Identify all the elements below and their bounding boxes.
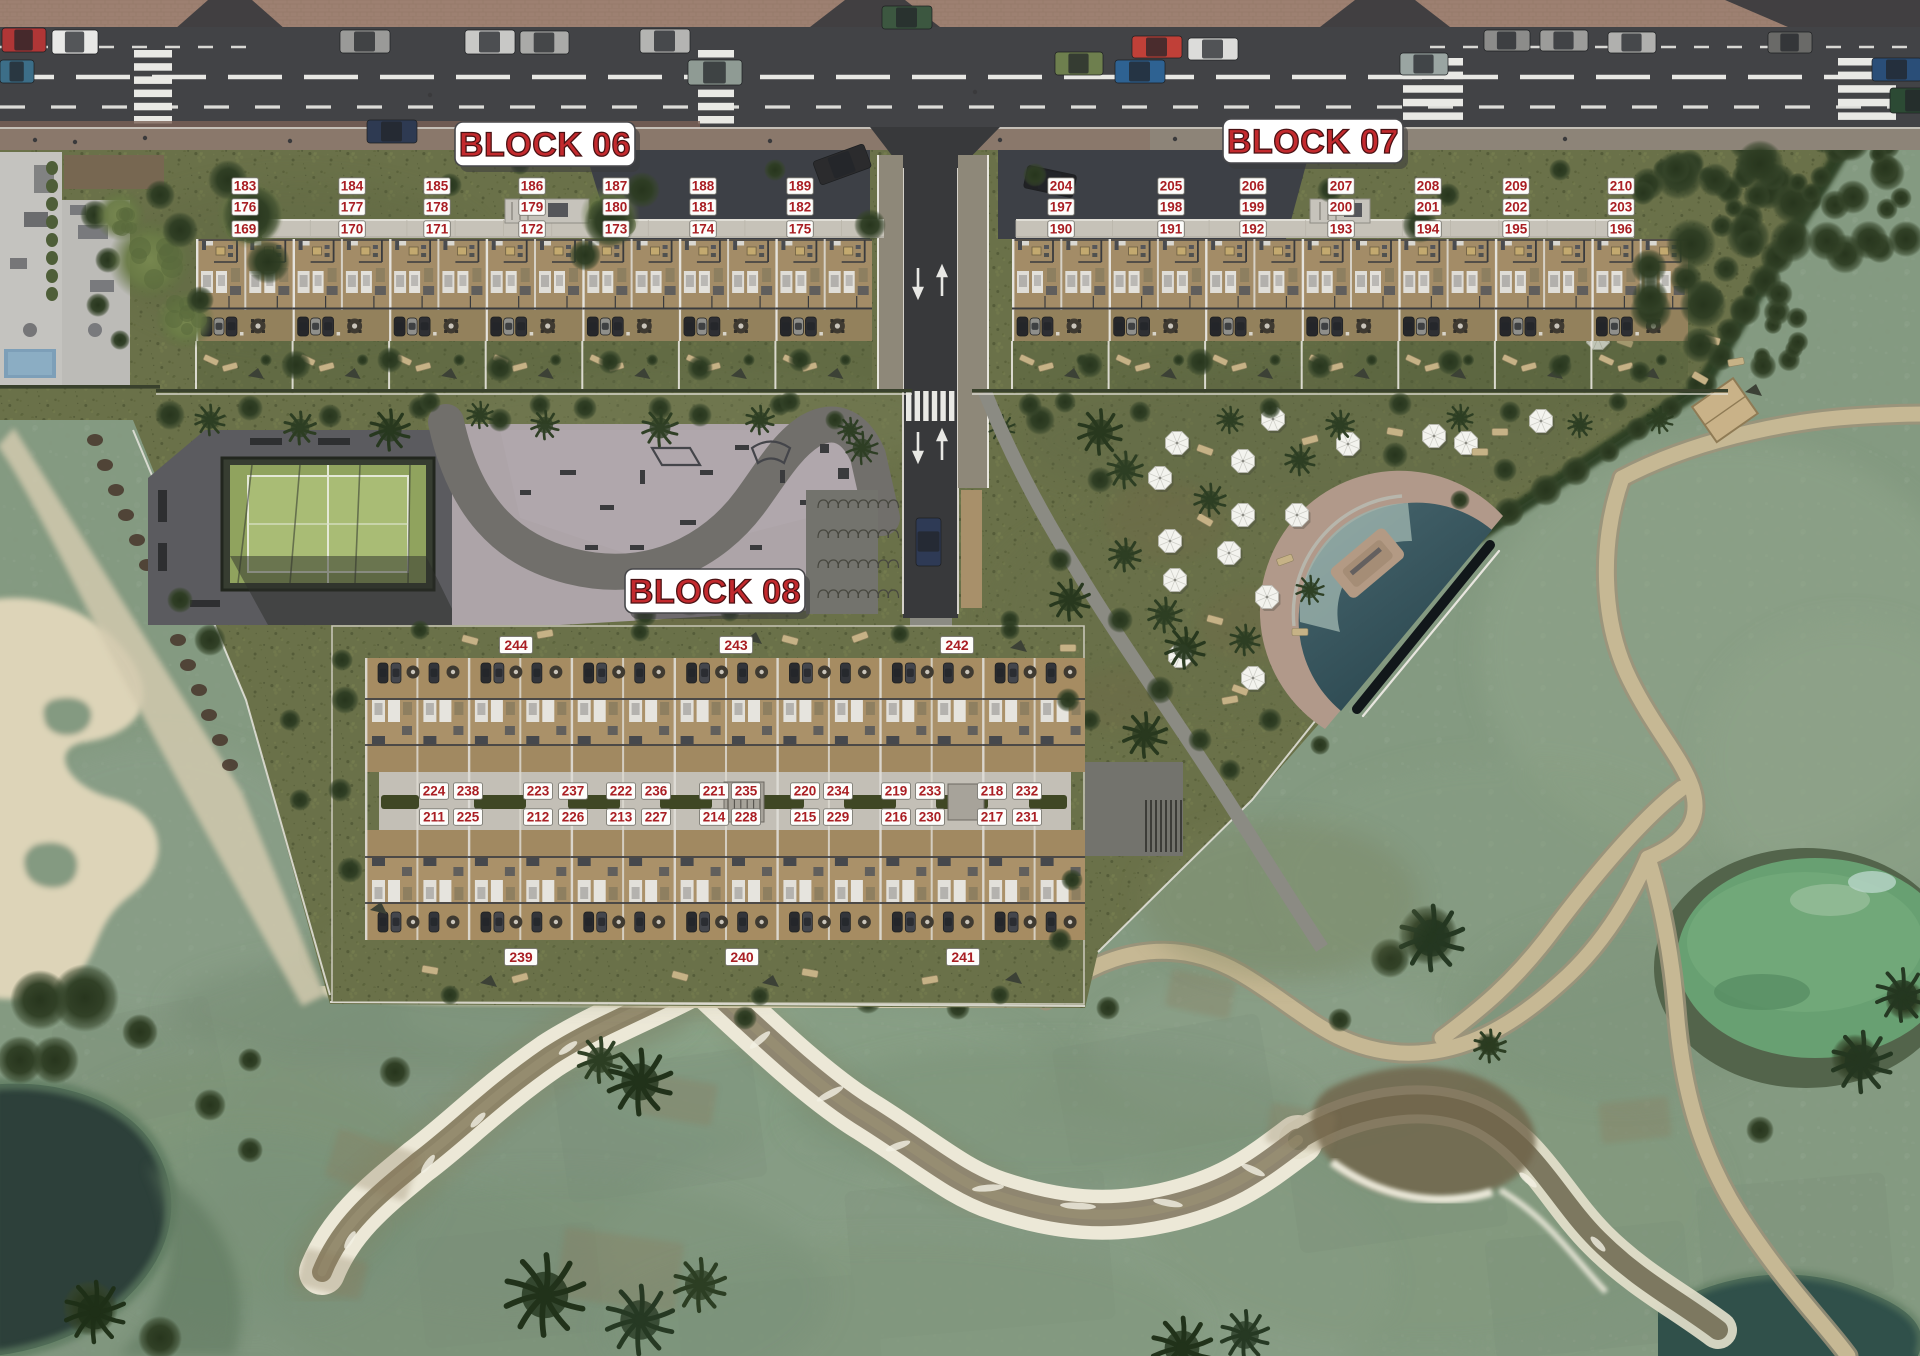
svg-text:236: 236 <box>645 784 668 799</box>
svg-text:232: 232 <box>1016 784 1039 799</box>
svg-text:187: 187 <box>605 179 628 194</box>
svg-text:176: 176 <box>234 200 257 215</box>
svg-text:243: 243 <box>724 637 748 653</box>
svg-text:233: 233 <box>919 784 942 799</box>
svg-text:188: 188 <box>692 179 715 194</box>
svg-text:179: 179 <box>521 200 544 215</box>
svg-text:202: 202 <box>1505 200 1528 215</box>
svg-text:241: 241 <box>951 949 975 965</box>
svg-text:174: 174 <box>692 222 715 237</box>
svg-text:220: 220 <box>794 784 817 799</box>
svg-text:227: 227 <box>645 810 668 825</box>
svg-text:182: 182 <box>789 200 812 215</box>
svg-text:170: 170 <box>341 222 364 237</box>
svg-text:205: 205 <box>1160 179 1183 194</box>
svg-text:203: 203 <box>1610 200 1633 215</box>
svg-text:185: 185 <box>426 179 449 194</box>
svg-text:221: 221 <box>703 784 726 799</box>
svg-text:200: 200 <box>1330 200 1353 215</box>
svg-text:212: 212 <box>527 810 550 825</box>
svg-text:242: 242 <box>945 637 969 653</box>
svg-text:229: 229 <box>827 810 850 825</box>
svg-text:215: 215 <box>794 810 817 825</box>
svg-text:199: 199 <box>1242 200 1265 215</box>
svg-text:228: 228 <box>735 810 758 825</box>
svg-text:217: 217 <box>981 810 1004 825</box>
svg-text:219: 219 <box>885 784 908 799</box>
svg-text:194: 194 <box>1417 222 1440 237</box>
svg-text:193: 193 <box>1330 222 1353 237</box>
svg-text:225: 225 <box>457 810 480 825</box>
svg-text:226: 226 <box>562 810 585 825</box>
svg-text:218: 218 <box>981 784 1004 799</box>
svg-text:237: 237 <box>562 784 585 799</box>
svg-text:208: 208 <box>1417 179 1440 194</box>
svg-text:240: 240 <box>730 949 754 965</box>
svg-text:BLOCK 08: BLOCK 08 <box>629 573 801 611</box>
svg-text:BLOCK 06: BLOCK 06 <box>459 126 631 164</box>
svg-text:222: 222 <box>610 784 633 799</box>
svg-text:238: 238 <box>457 784 480 799</box>
svg-text:184: 184 <box>341 179 364 194</box>
svg-text:198: 198 <box>1160 200 1183 215</box>
svg-text:192: 192 <box>1242 222 1265 237</box>
svg-text:235: 235 <box>735 784 758 799</box>
svg-text:216: 216 <box>885 810 908 825</box>
svg-text:234: 234 <box>827 784 850 799</box>
svg-text:213: 213 <box>610 810 633 825</box>
svg-text:191: 191 <box>1160 222 1183 237</box>
svg-text:186: 186 <box>521 179 544 194</box>
svg-text:173: 173 <box>605 222 628 237</box>
svg-text:230: 230 <box>919 810 942 825</box>
svg-text:195: 195 <box>1505 222 1528 237</box>
svg-text:189: 189 <box>789 179 812 194</box>
svg-text:209: 209 <box>1505 179 1528 194</box>
svg-text:206: 206 <box>1242 179 1265 194</box>
svg-text:211: 211 <box>423 810 445 825</box>
svg-text:177: 177 <box>341 200 364 215</box>
svg-text:172: 172 <box>521 222 544 237</box>
svg-text:175: 175 <box>789 222 812 237</box>
svg-text:204: 204 <box>1050 179 1073 194</box>
svg-text:169: 169 <box>234 222 257 237</box>
svg-text:201: 201 <box>1417 200 1440 215</box>
svg-text:224: 224 <box>423 784 446 799</box>
svg-text:239: 239 <box>509 949 533 965</box>
svg-text:196: 196 <box>1610 222 1633 237</box>
svg-text:231: 231 <box>1016 810 1039 825</box>
svg-text:181: 181 <box>692 200 715 215</box>
svg-text:178: 178 <box>426 200 449 215</box>
svg-text:223: 223 <box>527 784 550 799</box>
svg-text:183: 183 <box>234 179 257 194</box>
svg-text:BLOCK 07: BLOCK 07 <box>1227 123 1399 161</box>
svg-text:214: 214 <box>703 810 726 825</box>
svg-text:210: 210 <box>1610 179 1633 194</box>
svg-text:180: 180 <box>605 200 628 215</box>
svg-text:207: 207 <box>1330 179 1353 194</box>
svg-text:197: 197 <box>1050 200 1073 215</box>
svg-text:244: 244 <box>504 637 528 653</box>
svg-text:190: 190 <box>1050 222 1073 237</box>
svg-text:171: 171 <box>426 222 449 237</box>
